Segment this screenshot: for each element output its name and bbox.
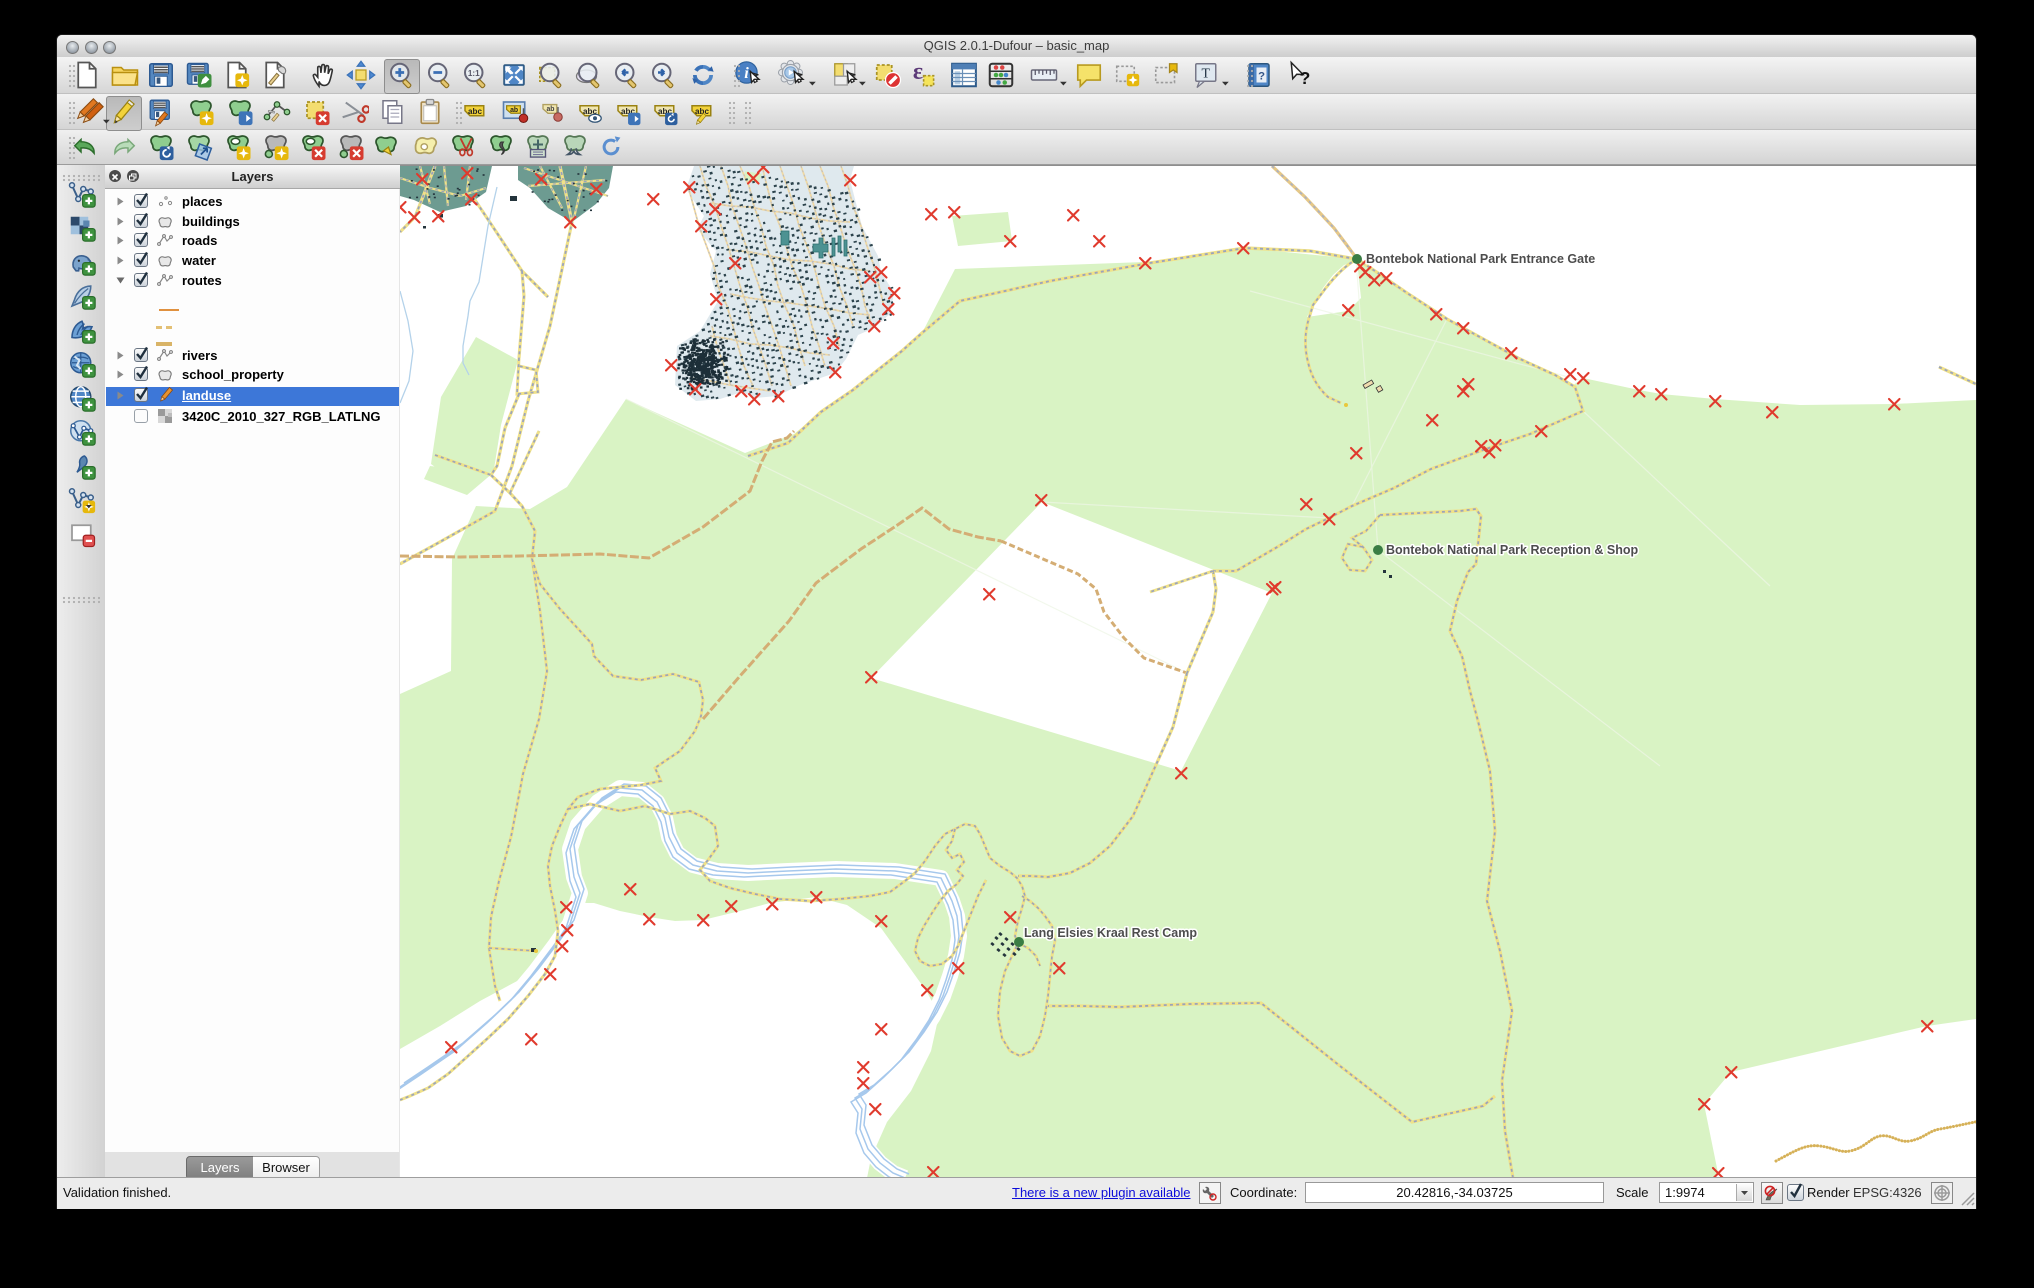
svg-text:1:1: 1:1 <box>468 69 480 78</box>
svg-text:Lang Elsies Kraal Rest Camp: Lang Elsies Kraal Rest Camp <box>1024 926 1197 940</box>
svg-text:T: T <box>1202 66 1211 81</box>
svg-text:?: ? <box>1258 70 1265 82</box>
svg-text:ε: ε <box>913 60 923 85</box>
svg-text:ab: ab <box>510 107 518 114</box>
svg-text:Bontebok National Park Entranc: Bontebok National Park Entrance Gate <box>1366 252 1595 266</box>
svg-text:i: i <box>744 64 749 82</box>
svg-text:ab: ab <box>546 106 554 113</box>
svg-text:Bontebok National Park Recepti: Bontebok National Park Reception & Shop <box>1386 543 1638 557</box>
svg-text:?: ? <box>1300 68 1311 88</box>
svg-text:abc: abc <box>468 107 482 116</box>
